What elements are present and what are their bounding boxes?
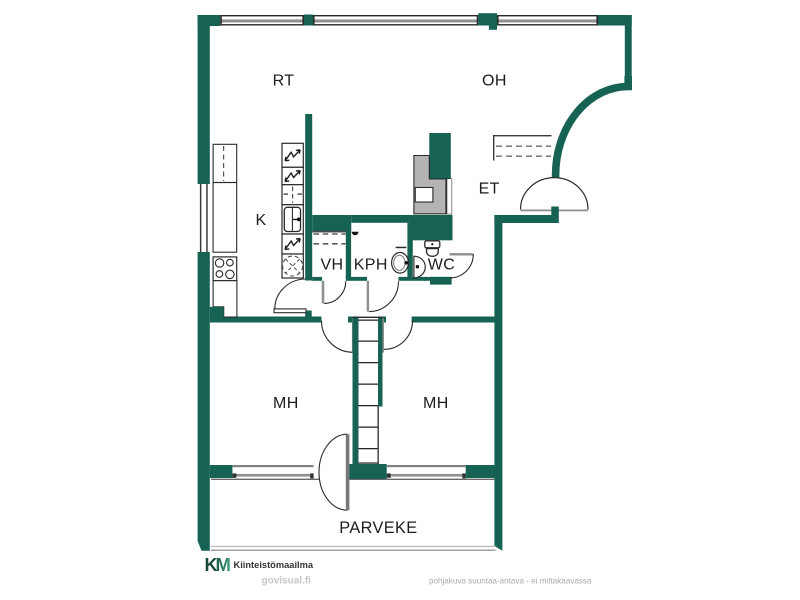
svg-text:M: M xyxy=(216,554,231,575)
svg-text:govisual.fi: govisual.fi xyxy=(262,576,312,587)
svg-text:KPH: KPH xyxy=(354,256,388,273)
svg-text:MH: MH xyxy=(273,395,299,412)
svg-text:MH: MH xyxy=(423,395,449,412)
svg-text:RT: RT xyxy=(273,73,295,90)
svg-text:pohjakuva suuntaa-antava - ei: pohjakuva suuntaa-antava - ei mittakaava… xyxy=(429,577,592,586)
svg-text:OH: OH xyxy=(482,73,507,90)
svg-text:PARVEKE: PARVEKE xyxy=(339,519,417,537)
svg-text:Kiinteistömaailma: Kiinteistömaailma xyxy=(234,560,314,570)
svg-text:WC: WC xyxy=(428,256,455,273)
svg-text:VH: VH xyxy=(320,256,343,273)
svg-text:K: K xyxy=(255,212,266,229)
svg-text:ET: ET xyxy=(479,180,500,197)
